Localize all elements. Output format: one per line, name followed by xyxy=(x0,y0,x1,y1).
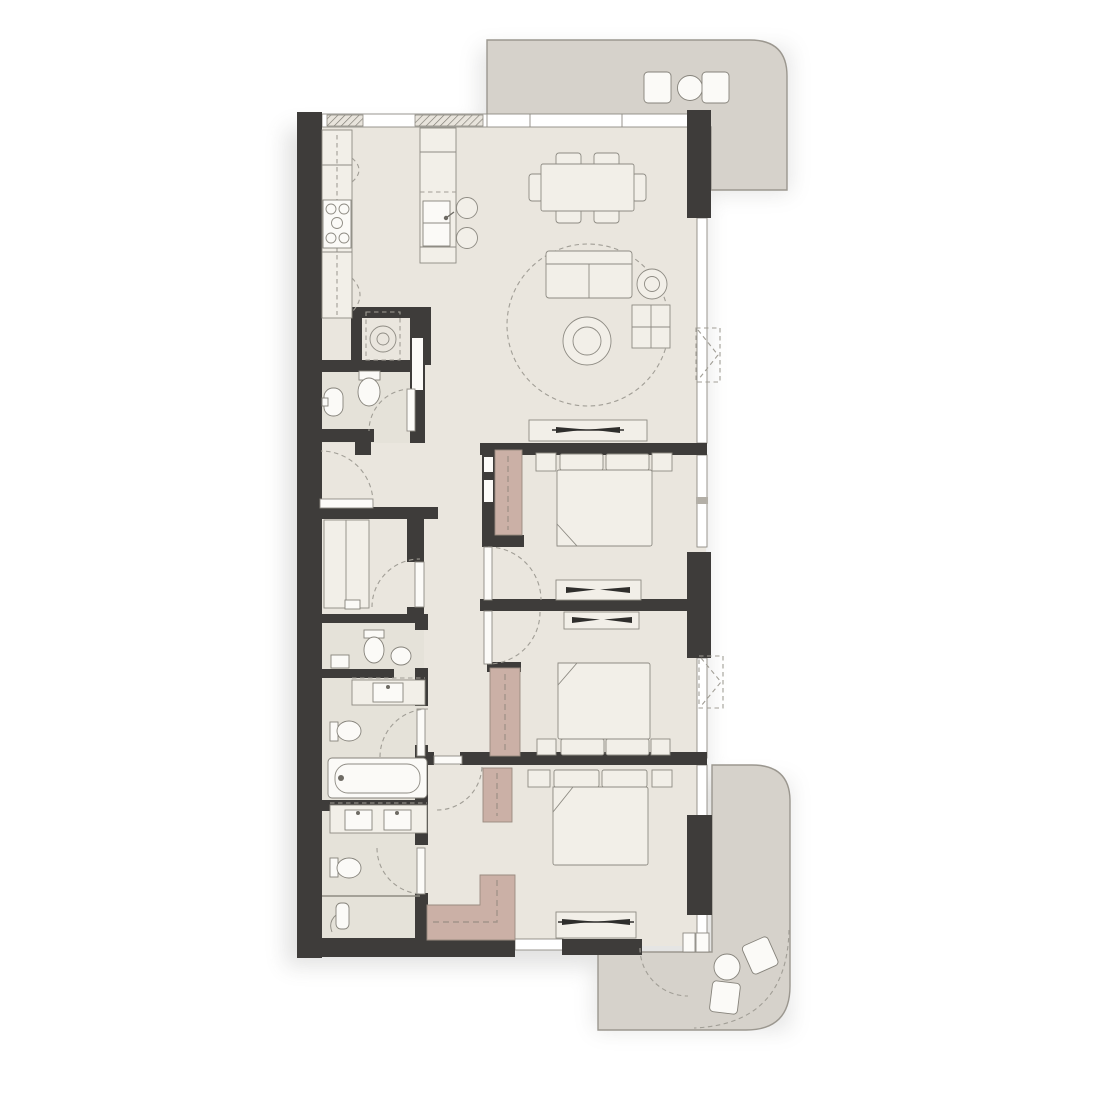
door-leaf-master xyxy=(434,756,462,764)
wall-stub xyxy=(355,429,371,455)
wall-bath2-top xyxy=(322,614,428,623)
round-coffee-table xyxy=(563,317,611,365)
wall-bedroom1-bedroom2 xyxy=(480,599,707,611)
tv-console-master xyxy=(556,912,636,938)
vanity-nook xyxy=(352,678,425,705)
wall-frame-slot xyxy=(484,480,493,502)
pillow xyxy=(606,739,649,755)
door-leaf-powder xyxy=(407,389,415,431)
round-side-table xyxy=(637,269,667,299)
faucet xyxy=(386,685,390,689)
toilet xyxy=(358,378,380,406)
shower-fixture xyxy=(336,903,349,929)
faucet xyxy=(395,811,399,815)
door-leaf-bedroom1 xyxy=(484,547,492,600)
nightstand xyxy=(528,770,550,787)
outdoor-chair xyxy=(644,72,671,103)
wall-powder-top xyxy=(316,360,410,372)
wall-south-west xyxy=(302,938,515,957)
dining-table xyxy=(541,164,634,211)
window-sill-hatch xyxy=(415,115,483,126)
double-vanity-counter xyxy=(330,805,427,833)
wall-pier-east-mid xyxy=(687,552,711,658)
balcony-door-frame xyxy=(683,933,695,952)
toilet xyxy=(337,858,361,878)
window-frame-divider xyxy=(696,497,708,504)
window-master-south xyxy=(515,939,563,950)
nightstand xyxy=(652,453,672,471)
bed-end-shelf xyxy=(345,600,360,609)
wall-frame-slot xyxy=(484,457,493,472)
wardrobe-bedroom2 xyxy=(490,668,520,756)
nightstand xyxy=(652,770,672,787)
wall-south-mid xyxy=(562,939,642,955)
wardrobe-bedroom1 xyxy=(495,450,522,535)
outdoor-round-table xyxy=(714,954,740,980)
door-leaf-bathroom3 xyxy=(417,709,425,756)
bed-mattress xyxy=(558,663,650,739)
balcony-door-frame xyxy=(696,933,709,952)
single-bed xyxy=(324,520,369,608)
wall-west xyxy=(297,112,322,958)
bed-mattress xyxy=(553,787,648,865)
pillow xyxy=(554,770,599,787)
wall-panel-master-east xyxy=(687,815,712,915)
nightstand xyxy=(537,739,556,755)
outdoor-round-table xyxy=(678,76,703,101)
pillow xyxy=(606,454,649,470)
wall-laundry-left xyxy=(351,318,362,362)
faucet xyxy=(356,811,360,815)
bar-stool xyxy=(457,198,478,219)
wall-frame-slot xyxy=(412,338,423,390)
floor-plan-canvas xyxy=(0,0,1100,1100)
bar-stool xyxy=(457,228,478,249)
basin-faucet xyxy=(322,398,328,406)
wall-maidroom-east-a xyxy=(407,507,424,562)
toilet xyxy=(337,721,361,741)
wall-pier-northeast xyxy=(687,110,711,218)
nightstand xyxy=(536,453,556,471)
wall-bath2-bottom xyxy=(322,669,394,678)
door-leaf-masterbath xyxy=(417,848,425,894)
outdoor-chair xyxy=(709,980,741,1014)
nightstand xyxy=(651,739,670,755)
round-basin xyxy=(391,647,411,665)
wall-corridor-east-a xyxy=(415,614,428,630)
pillow xyxy=(560,454,603,470)
wall-closet-stub xyxy=(482,535,524,547)
door-leaf-bedroom2 xyxy=(484,611,492,664)
pillow xyxy=(602,770,647,787)
outdoor-chair xyxy=(702,72,729,103)
toilet xyxy=(364,637,384,663)
side-shelf xyxy=(331,655,349,668)
island-sink xyxy=(423,201,450,246)
window-sill-hatch xyxy=(327,115,363,126)
wall-masterbath-east-b xyxy=(415,893,428,940)
door-leaf-maid xyxy=(320,499,373,508)
maid-room xyxy=(324,520,369,609)
bed-mattress xyxy=(557,470,652,546)
floor-plan-svg xyxy=(0,0,1100,1100)
pillow xyxy=(561,739,604,755)
door-leaf-corridor xyxy=(415,562,424,607)
window-top-band xyxy=(322,114,690,127)
tub-faucet xyxy=(338,775,344,781)
